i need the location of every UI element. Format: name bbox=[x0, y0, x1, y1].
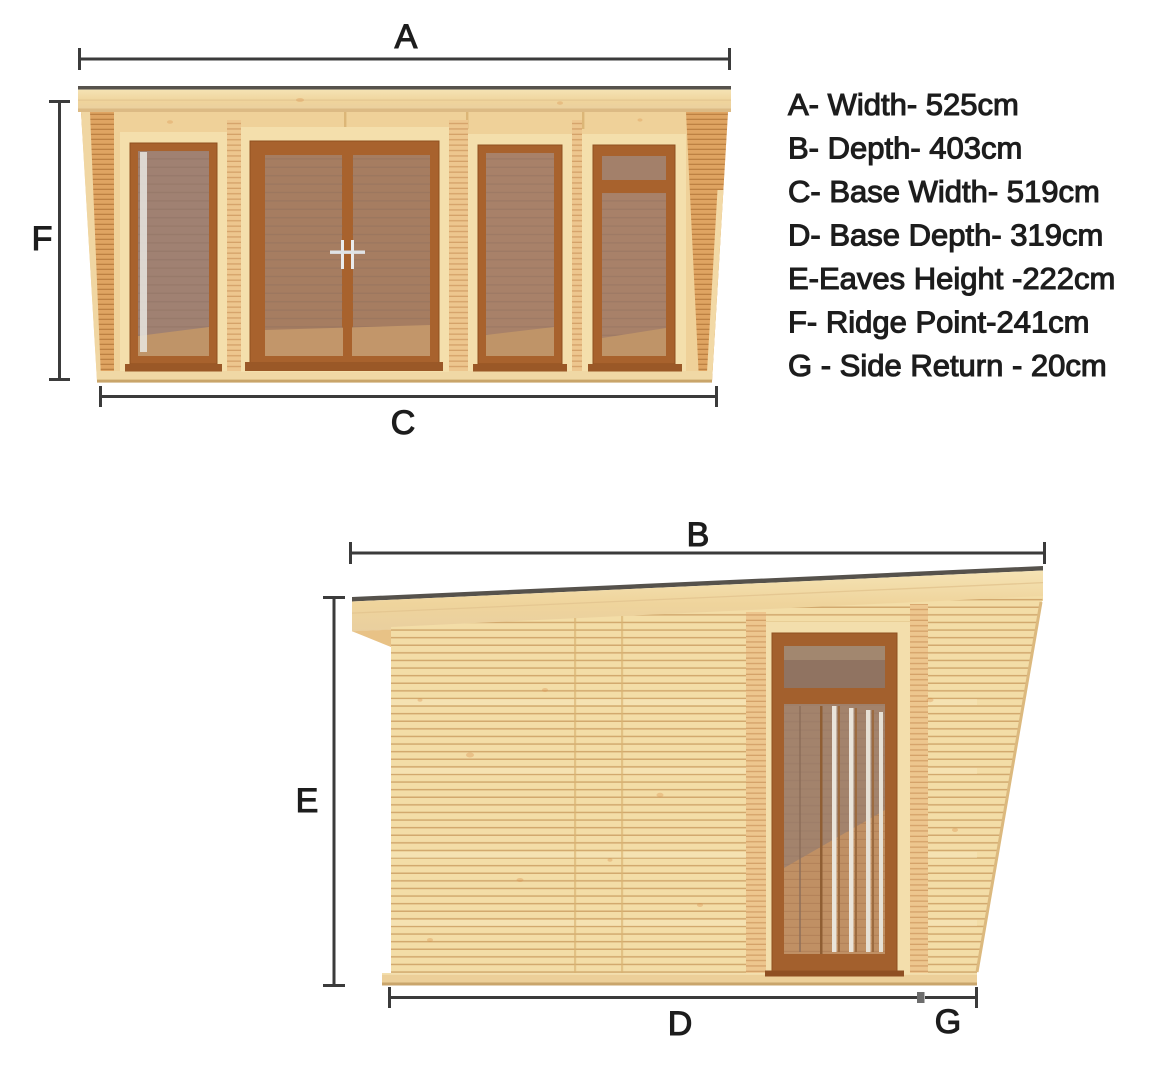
svg-text:C- Base Width- 519cm: C- Base Width- 519cm bbox=[788, 174, 1100, 209]
svg-text:G: G bbox=[935, 1003, 961, 1041]
svg-text:D- Base Depth- 319cm: D- Base Depth- 319cm bbox=[788, 218, 1103, 253]
svg-text:D: D bbox=[668, 1005, 693, 1043]
svg-text:C: C bbox=[391, 404, 416, 442]
svg-text:A- Width- 525cm: A- Width- 525cm bbox=[788, 87, 1019, 122]
svg-text:A: A bbox=[395, 18, 418, 56]
svg-text:E-Eaves Height -222cm: E-Eaves Height -222cm bbox=[788, 261, 1115, 296]
svg-text:G - Side Return - 20cm: G - Side Return - 20cm bbox=[788, 348, 1107, 383]
svg-text:B- Depth- 403cm: B- Depth- 403cm bbox=[788, 131, 1022, 166]
svg-text:B: B bbox=[687, 516, 710, 554]
svg-text:F: F bbox=[32, 220, 53, 258]
svg-text:F- Ridge Point-241cm: F- Ridge Point-241cm bbox=[788, 305, 1090, 340]
svg-text:E: E bbox=[296, 782, 319, 820]
